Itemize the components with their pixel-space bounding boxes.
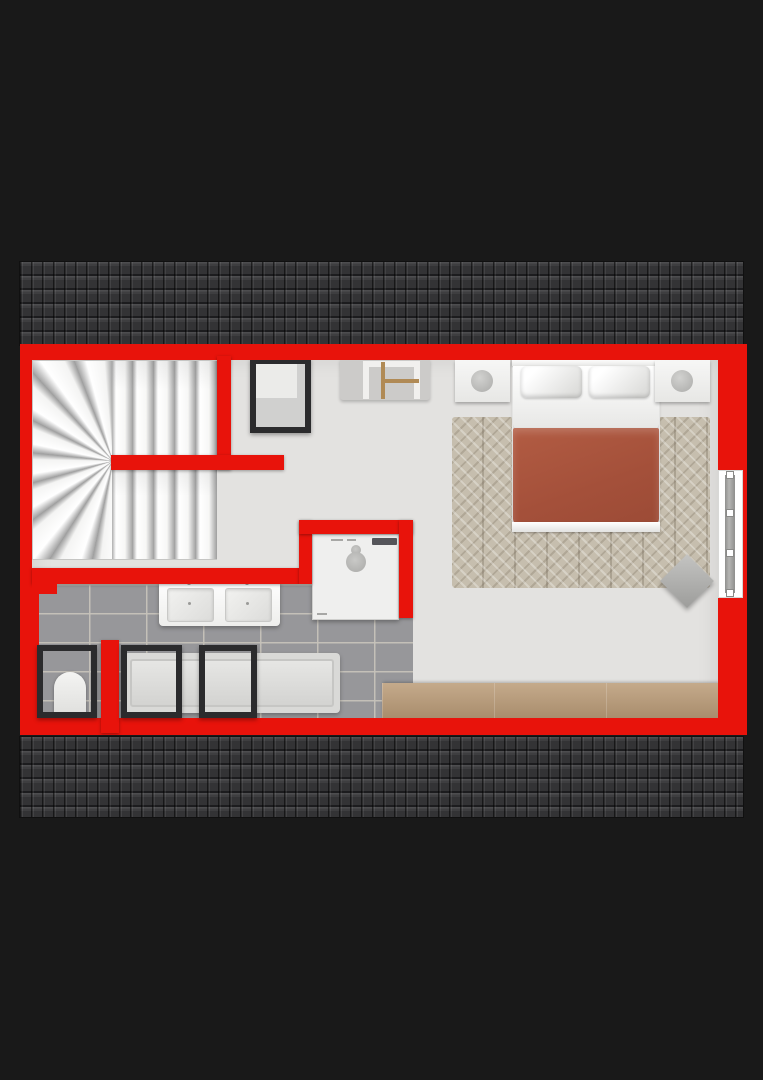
staircase-lower-flight bbox=[112, 469, 217, 559]
desk-edge-left bbox=[363, 361, 369, 399]
wall-niche-right bbox=[399, 520, 413, 618]
window-handle-icon bbox=[726, 471, 734, 479]
washer-door-icon bbox=[346, 552, 366, 572]
bed-footboard bbox=[512, 522, 660, 532]
desk-edge-top bbox=[363, 361, 420, 367]
wall-toilet-stub bbox=[101, 640, 119, 733]
lamp-icon bbox=[471, 370, 493, 392]
staircase-winder-treads bbox=[33, 361, 113, 559]
staircase-upper-flight bbox=[112, 361, 217, 456]
skylight-bathtub-2 bbox=[199, 645, 257, 718]
nightstand-left bbox=[455, 360, 510, 402]
washing-machine bbox=[312, 534, 399, 620]
lamp-icon bbox=[671, 370, 693, 392]
skylight-bathtub-1 bbox=[121, 645, 182, 718]
washer-mark bbox=[331, 539, 343, 541]
roof-window-hall bbox=[250, 358, 311, 433]
wall-niche-top bbox=[299, 520, 413, 534]
bed-duvet bbox=[513, 428, 659, 524]
pillow-right bbox=[589, 366, 650, 398]
desk-with-chair bbox=[340, 358, 430, 400]
bed-headboard bbox=[512, 359, 660, 366]
double-bed bbox=[512, 359, 660, 532]
nightstand-right bbox=[655, 360, 710, 402]
drain-icon bbox=[188, 602, 191, 605]
wall-bottom bbox=[20, 718, 747, 735]
washer-control-panel bbox=[372, 538, 397, 545]
roof-window-sash bbox=[256, 364, 297, 398]
window-right bbox=[718, 470, 743, 598]
window-handle-icon bbox=[726, 589, 734, 597]
roof-bottom-tiles bbox=[20, 737, 743, 817]
roof-top-tiles bbox=[20, 262, 743, 345]
wall-stair-landing-stub bbox=[111, 455, 284, 470]
window-handle-icon bbox=[726, 549, 734, 557]
drain-icon bbox=[246, 602, 249, 605]
floor-plan-canvas bbox=[0, 0, 763, 1080]
washer-mark bbox=[347, 539, 356, 541]
wall-bathroom bbox=[32, 568, 299, 584]
basin-left bbox=[167, 588, 214, 622]
wall-top bbox=[20, 344, 747, 360]
skylight-toilet bbox=[37, 645, 97, 718]
wall-stairwell-vertical bbox=[217, 356, 231, 470]
basin-right bbox=[225, 588, 272, 622]
pillow-left bbox=[521, 366, 582, 398]
chair-armrest bbox=[385, 379, 419, 383]
washer-label-mark bbox=[317, 613, 327, 615]
wall-bathroom-corner bbox=[32, 568, 57, 594]
window-glazing-bar bbox=[725, 475, 735, 593]
window-handle-icon bbox=[726, 509, 734, 517]
wood-cabinet bbox=[382, 683, 718, 719]
sink-vanity bbox=[159, 578, 280, 626]
